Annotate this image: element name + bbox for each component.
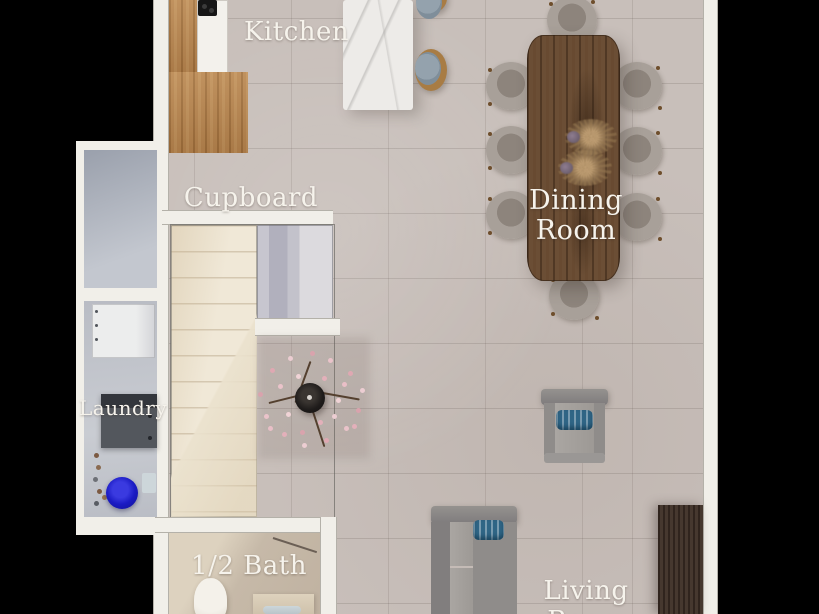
sofa-left-arm bbox=[431, 522, 450, 614]
bar-stool-2 bbox=[415, 49, 447, 91]
bath-vanity bbox=[253, 594, 314, 614]
sofa-cushion-1 bbox=[450, 522, 473, 566]
sofa-cushion-2 bbox=[450, 568, 473, 614]
label-cupboard: Cupboard bbox=[180, 183, 322, 213]
plant-pot bbox=[295, 383, 325, 413]
laundry-cabinet bbox=[92, 304, 155, 358]
armchair-left-arm bbox=[544, 403, 555, 455]
sofa bbox=[431, 506, 517, 614]
label-living-room: Living Room bbox=[507, 576, 665, 614]
armchair-front-edge bbox=[544, 453, 605, 463]
bath-top-wall bbox=[155, 517, 337, 533]
label-laundry: Laundry bbox=[79, 396, 161, 420]
label-dining-line2: Room bbox=[511, 216, 641, 246]
label-dining-line1: Dining bbox=[511, 186, 641, 216]
laundry-clutter bbox=[94, 453, 99, 458]
laundry-basket bbox=[142, 473, 156, 493]
staircase bbox=[171, 225, 257, 517]
storage-room bbox=[84, 150, 157, 288]
bath-sink bbox=[263, 606, 301, 614]
cupboard-closet bbox=[257, 225, 333, 320]
kitchen-counter-wood-upper bbox=[169, 0, 198, 75]
toilet bbox=[194, 578, 227, 614]
armchair-pillow-blue bbox=[556, 410, 593, 430]
floor-plan-render: Kitchen Cupboard Dining Room Laundry 1/2… bbox=[0, 0, 819, 614]
kitchen-counter-wood-lower bbox=[169, 72, 248, 153]
kitchen-counter-white bbox=[197, 0, 228, 74]
sofa-pillow-blue bbox=[473, 520, 504, 540]
label-half-bath: 1/2 Bath bbox=[174, 551, 324, 581]
kitchen-island-marble bbox=[343, 0, 413, 110]
blossom-plant bbox=[250, 330, 370, 460]
armchair bbox=[541, 389, 608, 467]
right-wall bbox=[703, 0, 718, 614]
label-kitchen: Kitchen bbox=[244, 17, 346, 47]
dried-centerpiece-2 bbox=[558, 150, 612, 186]
cooktop-stove bbox=[198, 0, 217, 16]
label-dining-room: Dining Room bbox=[511, 186, 641, 246]
laundry-tub-blue bbox=[106, 477, 138, 509]
armchair-right-arm bbox=[594, 403, 605, 455]
